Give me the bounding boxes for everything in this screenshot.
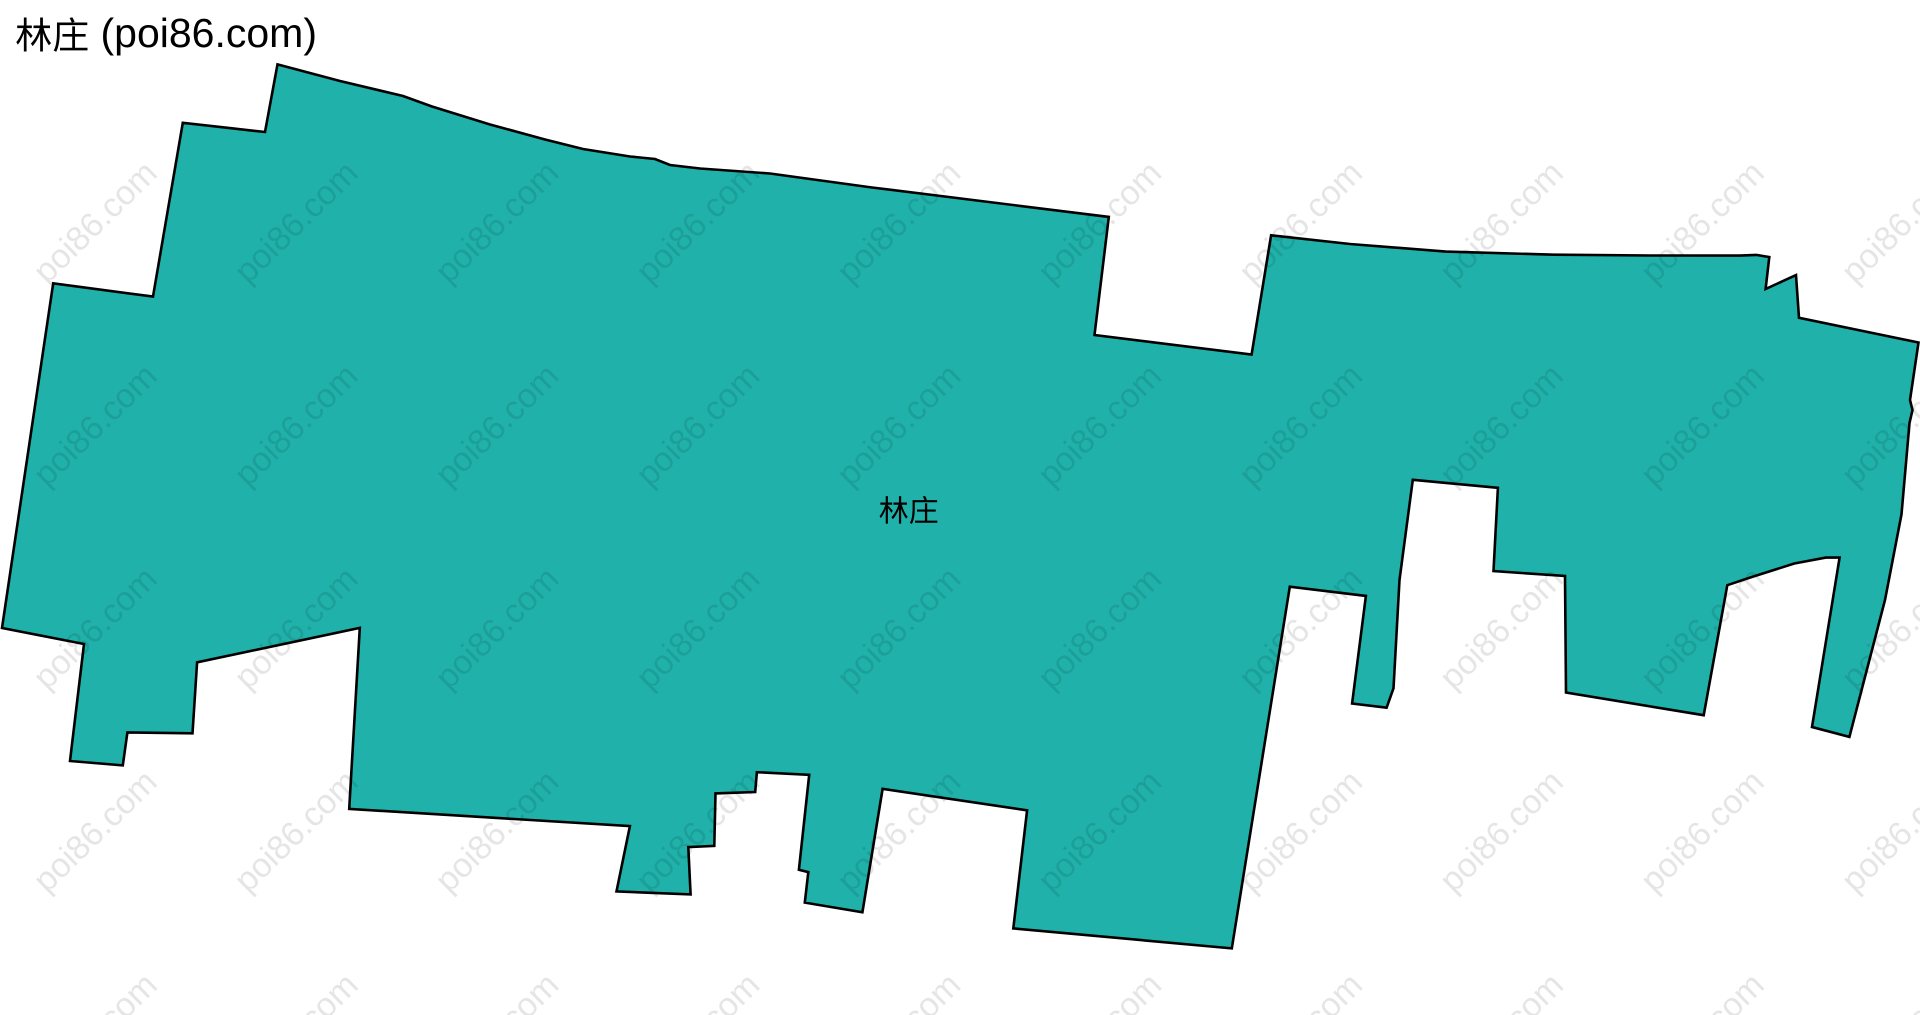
svg-text:poi86.com: poi86.com bbox=[1432, 966, 1571, 1015]
svg-text:poi86.com: poi86.com bbox=[1633, 966, 1772, 1015]
svg-text:poi86.com: poi86.com bbox=[830, 966, 969, 1015]
svg-text:poi86.com: poi86.com bbox=[1834, 763, 1920, 900]
svg-text:(poi86.com): (poi86.com) bbox=[101, 10, 317, 56]
svg-text:poi86.com: poi86.com bbox=[227, 763, 366, 900]
svg-text:poi86.com: poi86.com bbox=[26, 966, 165, 1015]
svg-text:poi86.com: poi86.com bbox=[26, 154, 165, 291]
svg-text:poi86.com: poi86.com bbox=[1231, 966, 1370, 1015]
svg-text:poi86.com: poi86.com bbox=[428, 966, 567, 1015]
svg-text:poi86.com: poi86.com bbox=[1633, 763, 1772, 900]
svg-text:poi86.com: poi86.com bbox=[1834, 154, 1920, 291]
svg-text:poi86.com: poi86.com bbox=[26, 763, 165, 900]
svg-text:poi86.com: poi86.com bbox=[1834, 966, 1920, 1015]
svg-text:poi86.com: poi86.com bbox=[227, 966, 366, 1015]
svg-text:poi86.com: poi86.com bbox=[1432, 763, 1571, 900]
svg-text:poi86.com: poi86.com bbox=[1031, 966, 1170, 1015]
svg-text:poi86.com: poi86.com bbox=[1432, 560, 1571, 697]
svg-text:poi86.com: poi86.com bbox=[629, 966, 768, 1015]
